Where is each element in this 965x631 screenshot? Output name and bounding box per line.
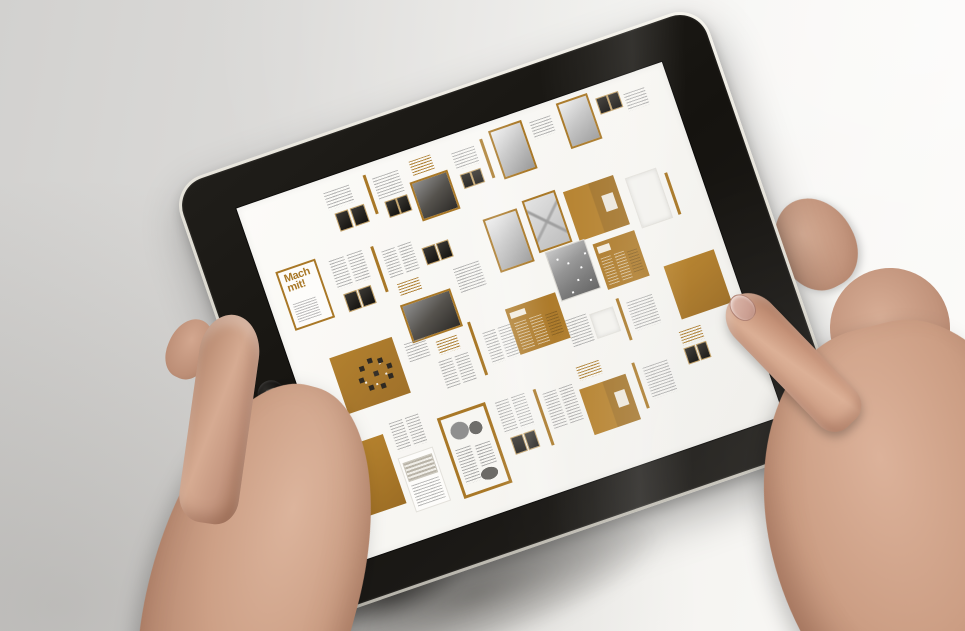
layout-overview-canvas: Mach mit!: [240, 66, 780, 559]
caption-text-thumbnail[interactable]: [574, 358, 606, 381]
home-button[interactable]: [254, 377, 288, 411]
poster-page-thumbnail[interactable]: Mach mit!: [276, 258, 336, 331]
white-page-thumbnail[interactable]: [591, 308, 620, 338]
workshop-photo-page-thumbnail[interactable]: [329, 337, 411, 414]
text-page-thumbnail[interactable]: [372, 170, 404, 200]
image-thumbnails[interactable]: [511, 430, 539, 454]
image-thumbnails[interactable]: [685, 342, 711, 363]
orange-page-thumbnail[interactable]: [664, 250, 732, 320]
photo-scene: Mach mit!: [0, 0, 965, 631]
text-page-thumbnail[interactable]: [438, 352, 477, 390]
image-thumbnails[interactable]: [422, 240, 453, 264]
orange-grid-spread-thumbnail[interactable]: [592, 230, 650, 290]
caption-text-thumbnail[interactable]: [434, 334, 464, 357]
text-page-thumbnail[interactable]: [543, 384, 584, 429]
image-thumbnails[interactable]: [344, 286, 375, 310]
text-page-thumbnail[interactable]: [494, 393, 534, 434]
text-page-thumbnail[interactable]: [328, 250, 371, 289]
framed-photo-page-thumbnail[interactable]: [409, 170, 460, 221]
orange-spread-thumbnail[interactable]: [563, 175, 630, 241]
caption-text-thumbnail[interactable]: [395, 277, 424, 298]
text-page-thumbnail[interactable]: [627, 294, 662, 331]
text-page-thumbnail[interactable]: [565, 313, 596, 348]
caption-text-thumbnail[interactable]: [407, 154, 437, 177]
poster-title: Mach mit!: [283, 265, 318, 294]
text-page-thumbnail[interactable]: [642, 359, 678, 399]
poster-body-lines: [293, 296, 322, 323]
image-thumbnails[interactable]: [336, 205, 369, 230]
text-page-thumbnail[interactable]: [404, 337, 431, 362]
orange-spread-thumbnail[interactable]: [579, 374, 641, 435]
text-page-thumbnail[interactable]: [389, 414, 428, 452]
gradient-photo-page-thumbnail[interactable]: [546, 240, 600, 300]
text-page-thumbnail[interactable]: [623, 87, 650, 112]
text-page-thumbnail[interactable]: [453, 261, 487, 294]
text-page-thumbnail[interactable]: [324, 185, 355, 211]
image-thumbnails[interactable]: [386, 196, 412, 217]
text-page-thumbnail[interactable]: [451, 145, 480, 170]
text-page-thumbnail[interactable]: [529, 115, 556, 140]
text-page-thumbnail[interactable]: [381, 241, 420, 279]
framed-photo-page-thumbnail[interactable]: [556, 93, 603, 149]
image-thumbnails[interactable]: [596, 92, 622, 113]
image-thumbnails[interactable]: [461, 169, 484, 188]
